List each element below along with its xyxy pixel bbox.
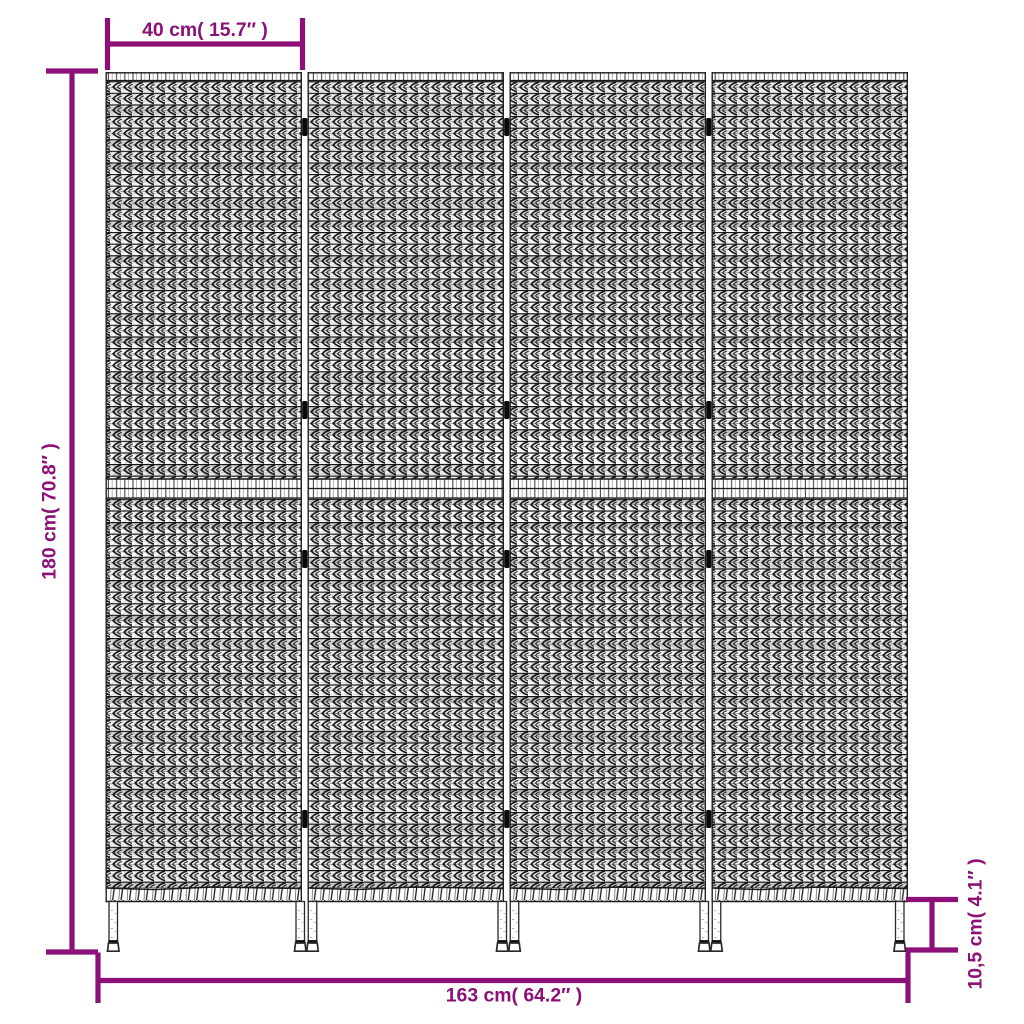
svg-text:40 cm( 15.7″ ): 40 cm( 15.7″ ): [142, 19, 268, 41]
svg-text:180 cm( 70.8″ ): 180 cm( 70.8″ ): [39, 443, 61, 579]
svg-text:163 cm( 64.2″ ): 163 cm( 64.2″ ): [446, 985, 582, 1007]
svg-text:10,5 cm( 4.1″ ): 10,5 cm( 4.1″ ): [965, 858, 987, 989]
